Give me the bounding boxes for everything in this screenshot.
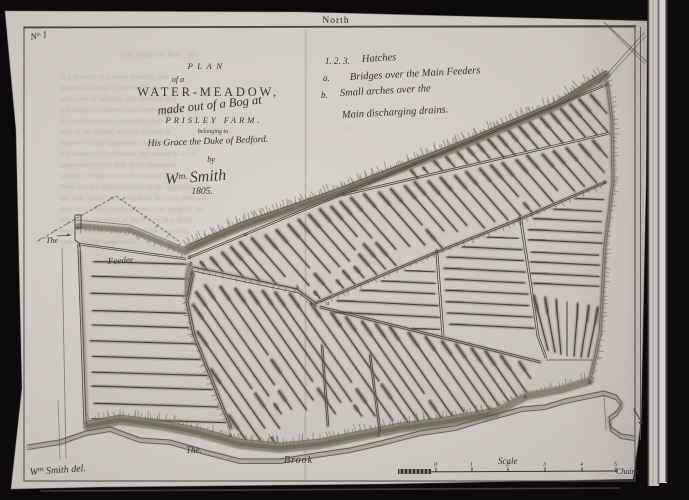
svg-text:2: 2 — [188, 254, 192, 261]
svg-text:4: 4 — [580, 461, 583, 468]
svg-text:1: 1 — [470, 462, 473, 468]
svg-text:The.: The. — [186, 445, 202, 455]
svg-text:Wm.Smith del.: Wm.Smith del. — [29, 462, 86, 478]
svg-text:1805.: 1805. — [191, 187, 212, 197]
svg-text:Feeder: Feeder — [107, 255, 134, 266]
svg-text:1. 2. 3.: 1. 2. 3. — [325, 56, 350, 66]
svg-text:Wm.Smith: Wm.Smith — [165, 167, 227, 188]
svg-text:3: 3 — [189, 269, 194, 276]
svg-text:belonging to: belonging to — [198, 129, 228, 135]
svg-text:b.: b. — [321, 90, 328, 100]
svg-text:Bridges over the Main Feeders: Bridges over the Main Feeders — [350, 65, 481, 83]
svg-text:The: The — [46, 236, 58, 245]
svg-text:a: a — [244, 231, 247, 238]
svg-text:North: North — [322, 16, 349, 26]
svg-text:b: b — [377, 432, 381, 439]
svg-text:PRISLEY FARM.: PRISLEY FARM. — [165, 115, 263, 125]
svg-text:b: b — [524, 394, 528, 401]
svg-text:Chains: Chains — [616, 467, 639, 476]
svg-text:b: b — [603, 179, 607, 186]
svg-text:2: 2 — [506, 462, 509, 468]
svg-text:Hatches: Hatches — [361, 52, 397, 65]
svg-text:No.1: No.1 — [29, 29, 49, 43]
svg-text:of a: of a — [172, 75, 184, 84]
svg-text:Brook: Brook — [284, 455, 313, 466]
svg-text:1: 1 — [189, 261, 192, 268]
svg-text:a.: a. — [323, 73, 330, 83]
svg-text:Small arches over the: Small arches over the — [340, 83, 432, 99]
svg-text:a: a — [77, 242, 80, 249]
svg-text:by: by — [207, 155, 215, 164]
svg-text:His Grace the Duke of Bedford.: His Grace the Duke of Bedford. — [147, 134, 269, 149]
svg-text:Main discharging drains.: Main discharging drains. — [341, 104, 449, 121]
svg-text:b: b — [296, 284, 300, 291]
svg-text:b: b — [435, 248, 439, 255]
svg-text:0: 0 — [434, 462, 437, 468]
svg-text:b: b — [518, 215, 522, 222]
svg-text:3: 3 — [542, 462, 546, 468]
svg-text:b: b — [229, 432, 233, 439]
svg-text:5: 5 — [614, 462, 617, 468]
svg-text:b: b — [588, 379, 592, 386]
svg-text:PLAN: PLAN — [187, 61, 227, 71]
svg-text:a: a — [326, 300, 329, 307]
